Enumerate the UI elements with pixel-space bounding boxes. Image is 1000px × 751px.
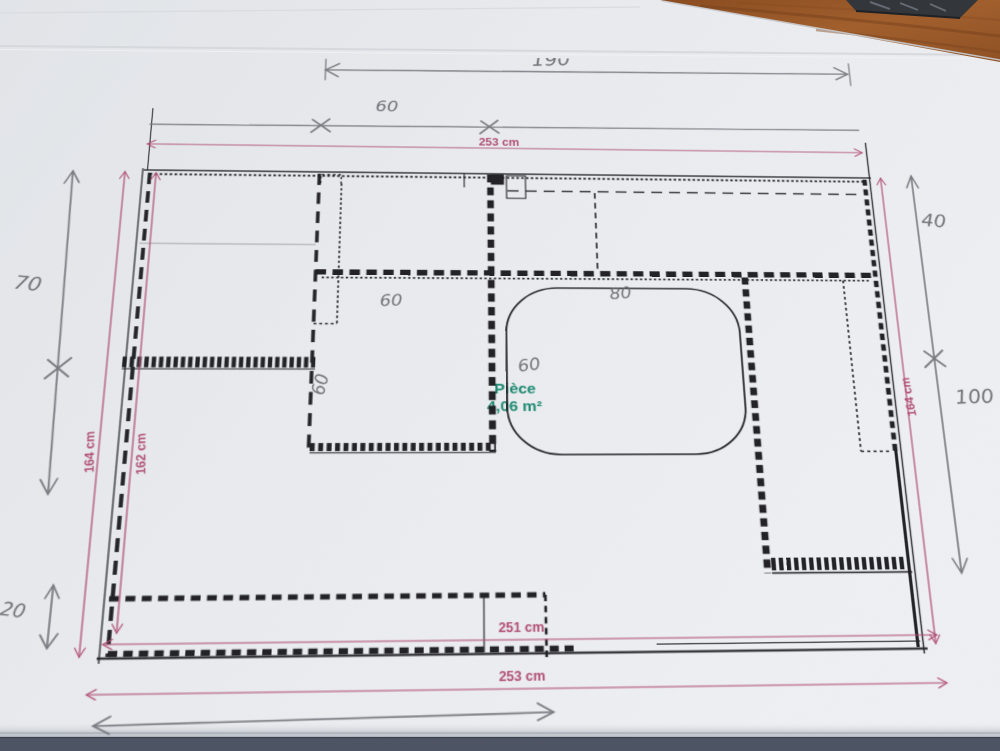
- dim-top-253: 253 cm: [479, 137, 519, 148]
- partition-left-vertical: [309, 174, 320, 448]
- wall-right-dashes: [864, 180, 895, 452]
- photo-of-floor-plan: Pièce 4,06 m²: [0, 0, 1000, 751]
- dim-left-162: 162 cm: [135, 433, 149, 475]
- wall-end-block: [491, 174, 504, 185]
- pencil-label-60-closet: 60: [380, 291, 403, 310]
- floor-plan-drawing: Pièce 4,06 m²: [0, 49, 1000, 742]
- bottom-closet-top: [109, 595, 545, 599]
- dim-bottom-251: 251 cm: [498, 621, 544, 635]
- pencil-label-80: 80: [608, 283, 633, 303]
- dim-bottom-253: 253 cm: [499, 670, 546, 685]
- dim-line-bottom-outer: [87, 683, 946, 695]
- desk-shadow-band: [0, 737, 1000, 751]
- wall-right-solid: [895, 447, 918, 647]
- pencil-label-60-top: 60: [375, 98, 398, 116]
- dim-left-164: 164 cm: [83, 431, 98, 473]
- wall-top-line: [144, 170, 871, 178]
- pencil-arrow-right: [911, 177, 961, 572]
- table-shape: [506, 288, 749, 455]
- dim-right-164: 164 cm: [899, 377, 919, 417]
- pencil-label-60-side: 60: [307, 372, 334, 397]
- door-frame-outline: [506, 176, 525, 199]
- right-closet-bottom-underline: [772, 572, 912, 573]
- pencil-label-60-center: 60: [516, 354, 542, 376]
- pencil-arrow-bottom: [94, 712, 552, 726]
- right-closet-bottom-bar: [771, 563, 909, 564]
- dim-line-left-outer: [79, 172, 125, 658]
- wall-top-dashes: [150, 174, 865, 182]
- pencil-arrow-top-span: [327, 66, 848, 78]
- pencil-arrow-left-70: [38, 172, 82, 492]
- partition-central-vertical: [490, 175, 492, 452]
- right-closet-wall: [745, 277, 768, 573]
- pencil-label-100: 100: [953, 386, 995, 409]
- wall-left-dashes: [107, 173, 149, 657]
- floor-plan: Pièce 4,06 m²: [0, 49, 1000, 742]
- pencil-label-20: 20: [0, 597, 28, 622]
- wall-bottom-double-line: [657, 641, 921, 644]
- partition-horizontal-heavy: [316, 272, 873, 275]
- thin-divider-line: [139, 243, 315, 244]
- pencil-label-40: 40: [921, 210, 947, 232]
- vertical-dash-line: [595, 193, 598, 270]
- bottom-closet-right: [545, 595, 546, 661]
- interior-partitions: [95, 170, 922, 666]
- extension-line-left: [147, 108, 152, 170]
- partition-horizontal-dotted: [322, 277, 871, 280]
- pencil-line-top-60: [150, 121, 859, 134]
- pink-dimensions: 253 cm 164 cm 162 cm 164 cm: [57, 133, 953, 701]
- header-dash-line: [508, 191, 864, 195]
- room-name-label: Pièce: [494, 381, 536, 397]
- pencil-label-70: 70: [12, 272, 44, 296]
- dim-line-bottom-inner: [104, 635, 936, 645]
